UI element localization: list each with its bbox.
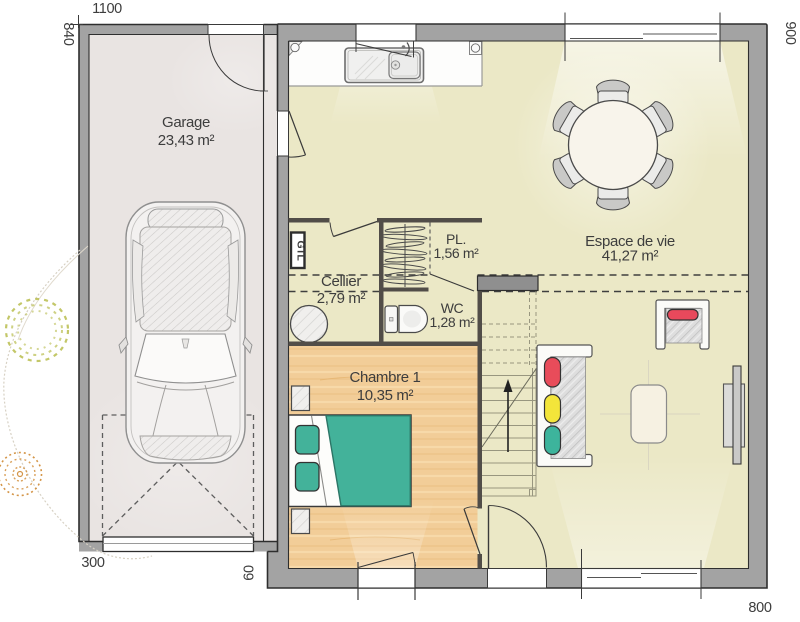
svg-text:1,28 m²: 1,28 m²	[429, 314, 475, 330]
svg-text:300: 300	[81, 555, 104, 571]
svg-text:1,56 m²: 1,56 m²	[433, 245, 479, 261]
svg-text:800: 800	[748, 600, 771, 616]
svg-text:GTL: GTL	[295, 241, 307, 262]
svg-text:Garage: Garage	[162, 114, 210, 131]
svg-text:2,79 m²: 2,79 m²	[317, 290, 366, 307]
svg-text:840: 840	[60, 22, 76, 45]
svg-text:41,27 m²: 41,27 m²	[602, 248, 659, 265]
svg-text:Cellier: Cellier	[321, 273, 361, 290]
svg-text:23,43 m²: 23,43 m²	[158, 132, 215, 149]
svg-text:60: 60	[242, 565, 258, 581]
svg-text:900: 900	[782, 21, 798, 44]
svg-text:1100: 1100	[92, 1, 122, 17]
svg-text:Chambre 1: Chambre 1	[349, 369, 420, 386]
svg-text:10,35 m²: 10,35 m²	[357, 387, 414, 404]
